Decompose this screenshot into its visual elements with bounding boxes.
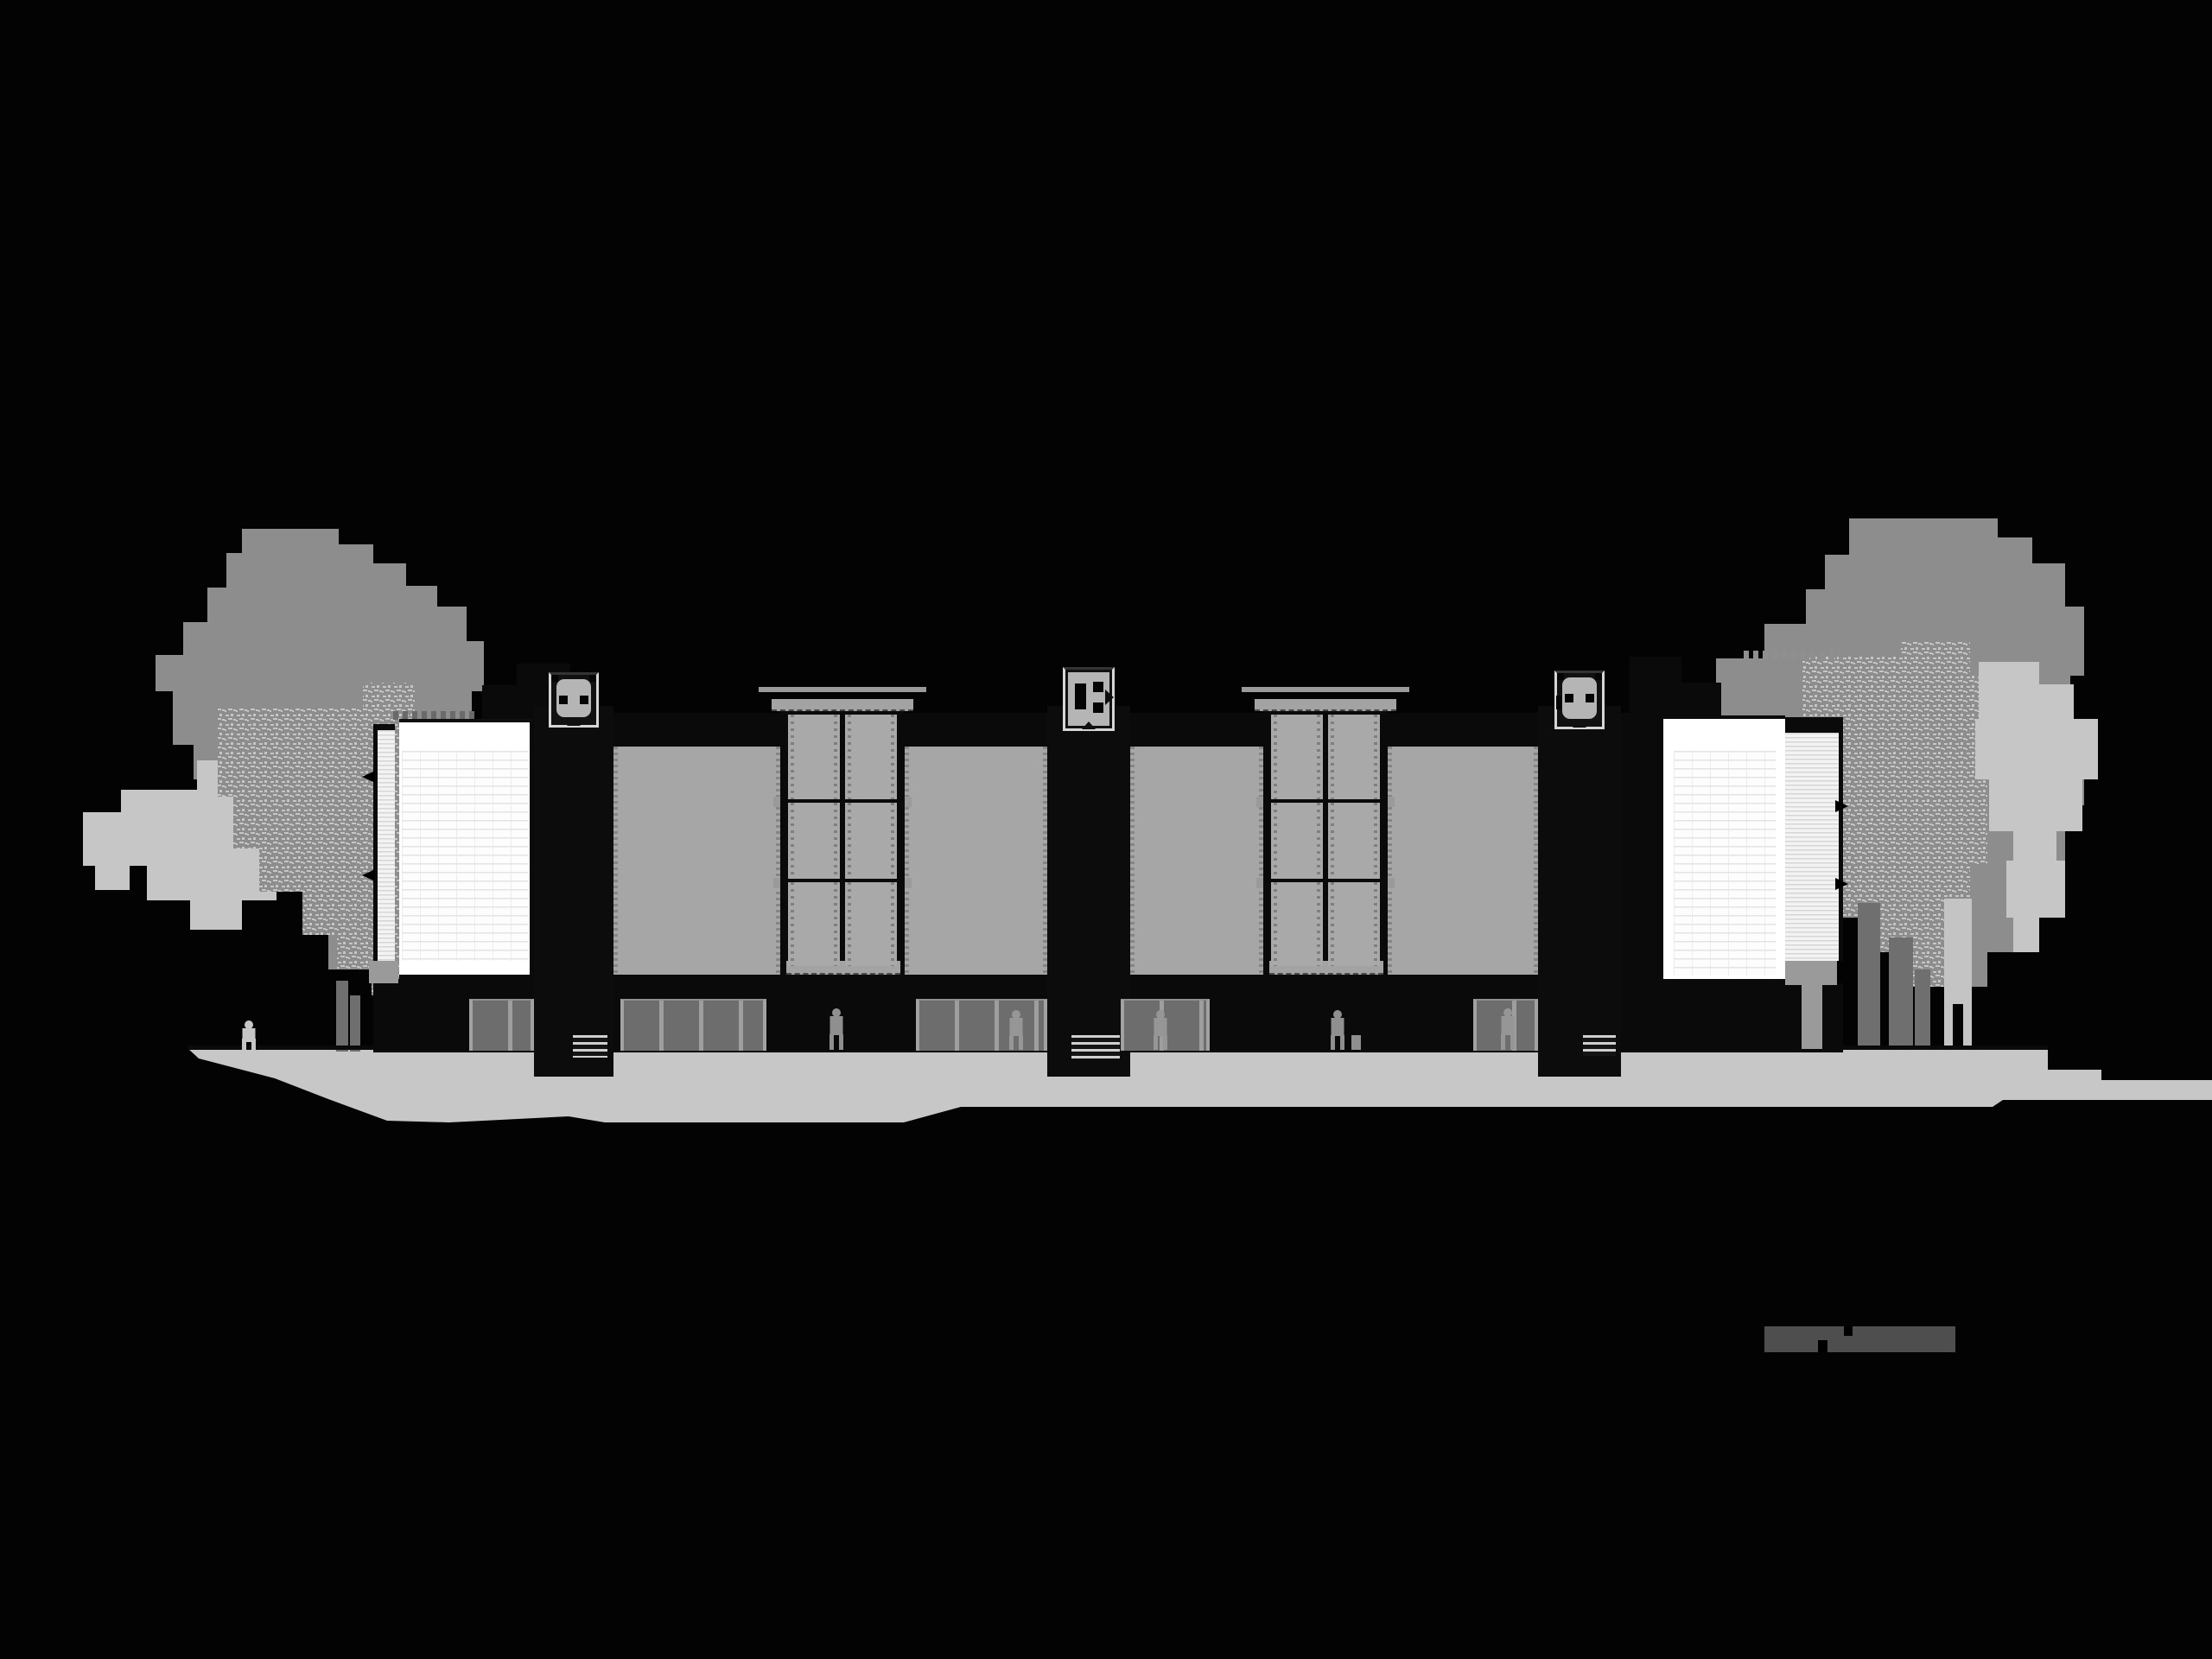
brick-texture	[1674, 751, 1776, 976]
storefront-glazing	[469, 999, 534, 1051]
emblem-notch	[1573, 720, 1586, 728]
person-part	[1163, 1035, 1167, 1050]
right-tree-trunk-light	[1944, 899, 1972, 1004]
window-bay-2-pane	[1328, 715, 1380, 799]
pedestal-left	[369, 961, 398, 983]
person-part	[830, 1016, 843, 1035]
storefront-glazing	[620, 999, 766, 1051]
pedestrian	[824, 1008, 849, 1050]
person-part	[829, 1034, 834, 1050]
tower-entry-stair	[1583, 1035, 1616, 1056]
person-part	[1331, 1035, 1335, 1050]
person-part	[1340, 1035, 1344, 1050]
suitcase	[1351, 1035, 1361, 1050]
stair-tower-3	[1538, 706, 1621, 1077]
emblem-notch	[1082, 721, 1096, 729]
logo-notch-bottom	[1818, 1340, 1827, 1352]
pedestrian	[1004, 1010, 1028, 1050]
facade-hatch-strip	[1130, 747, 1135, 975]
window-bay-1-pane	[788, 803, 840, 879]
right-strip-top-cap	[1785, 717, 1843, 733]
person-part	[1019, 1035, 1023, 1050]
tower-entry-stair	[1071, 1035, 1120, 1059]
window-bay-2-pane	[1271, 882, 1323, 966]
bay-cap-bar	[772, 699, 913, 711]
brick-texture	[402, 751, 529, 961]
person-part	[251, 1039, 256, 1050]
cartouche-sign-right	[1554, 671, 1605, 729]
break-mark-icon	[1835, 800, 1848, 812]
right-edge-line	[1839, 717, 1843, 961]
person-part	[1154, 1035, 1158, 1050]
person-part	[1010, 1018, 1023, 1036]
bay-parapet-line	[759, 687, 926, 692]
person-part	[839, 1034, 843, 1050]
person-part	[1332, 1018, 1344, 1036]
left-tree-trunk	[336, 981, 348, 1052]
window-bay-1-pane	[845, 882, 897, 966]
emblem-notch	[567, 718, 581, 726]
person-part	[1502, 1016, 1515, 1035]
cartouche-sign-left	[549, 672, 599, 728]
facade-hatch-strip	[1388, 747, 1392, 975]
billboard-panel-left	[399, 719, 534, 979]
bay-cap-bar	[1255, 699, 1396, 711]
emblem-bar	[1075, 683, 1086, 709]
billboard-panel-right	[1659, 715, 1785, 983]
pedestal-right	[1785, 961, 1837, 985]
logo-block	[1764, 1326, 1955, 1352]
break-mark-icon	[1835, 878, 1848, 890]
bay-parapet-line	[1242, 687, 1409, 692]
emblem-square	[1093, 702, 1103, 713]
emblem-corner	[589, 675, 596, 682]
gap-right-of-tower3	[1621, 713, 1661, 1052]
right-tree-trunk	[1858, 903, 1880, 1050]
facade-hatch-strip	[613, 747, 618, 975]
emblem-corner	[551, 675, 558, 682]
bay-slab-tab	[1256, 878, 1263, 888]
chevron-right-icon	[1105, 690, 1114, 705]
pedestrian	[1148, 1010, 1173, 1050]
person-part	[242, 1039, 246, 1050]
person-part	[1009, 1035, 1014, 1050]
person-part	[1510, 1034, 1515, 1050]
window-bay-1-pane	[788, 715, 840, 799]
right-tree-trunk	[1889, 938, 1913, 1050]
right-tree-trunk	[1915, 969, 1930, 1050]
emblem-eye	[1565, 694, 1573, 702]
emblem-bracket	[1556, 696, 1561, 709]
pedestrian	[1496, 1008, 1520, 1050]
cartouche-sign-center	[1063, 667, 1115, 731]
break-mark-icon	[362, 869, 375, 881]
person-part	[1501, 1034, 1505, 1050]
ground-slab	[188, 1048, 2212, 1122]
left-tree-trunk	[350, 995, 360, 1052]
stair-tower-2	[1047, 706, 1130, 1077]
emblem-eye	[580, 696, 588, 704]
window-bay-2-pane	[1271, 803, 1323, 879]
facade-hatch-strip	[905, 747, 909, 975]
emblem-square	[1093, 682, 1103, 692]
window-bay-2-pane	[1328, 882, 1380, 966]
person-part	[1154, 1018, 1167, 1036]
right-tree-trunk-light-leg	[1963, 1002, 1972, 1050]
channel-glass-strip	[1785, 733, 1839, 961]
left-tree-light-mass-small	[83, 812, 130, 890]
elevation-canvas	[0, 0, 2212, 1659]
window-bay-1-pane	[788, 882, 840, 966]
bay-slab-tab	[905, 797, 912, 807]
pedestrian	[237, 1020, 261, 1050]
bay-slab-tab	[1256, 797, 1263, 807]
emblem-eye	[1586, 694, 1594, 702]
bay-slab-tab	[773, 797, 780, 807]
emblem-eye	[559, 696, 568, 704]
bay-slab-tab	[1388, 797, 1395, 807]
bay-slab-tab	[1388, 878, 1395, 888]
break-mark-icon	[362, 771, 375, 783]
right-tree-trunk-light-leg	[1944, 1002, 1953, 1050]
window-bay-2-pane	[1271, 715, 1323, 799]
facade-segment-c	[1130, 747, 1263, 975]
window-bay-1-pane	[845, 715, 897, 799]
emblem-corner	[1557, 673, 1564, 680]
logo-notch-top	[1844, 1326, 1853, 1336]
right-tree-light-mass	[1975, 662, 2098, 861]
right-tree-light-mass-lower	[2006, 861, 2065, 952]
parapet-step-right-1	[1630, 657, 1681, 717]
pedestal-right-stem	[1802, 985, 1822, 1049]
facade-segment-b	[905, 747, 1047, 975]
window-bay-1-pane	[845, 803, 897, 879]
emblem-corner	[1595, 673, 1602, 680]
channel-glass-strip	[378, 730, 395, 969]
pedestrian-with-case	[1325, 1010, 1350, 1050]
micro-annotation	[1744, 651, 1840, 659]
bay-slab-tab	[773, 878, 780, 888]
tower-entry-stair	[573, 1035, 607, 1058]
window-bay-2-pane	[1328, 803, 1380, 879]
facade-segment-a	[613, 747, 780, 975]
bay-slab-tab	[905, 878, 912, 888]
facade-segment-d	[1388, 747, 1538, 975]
stair-tower-1	[534, 706, 613, 1077]
